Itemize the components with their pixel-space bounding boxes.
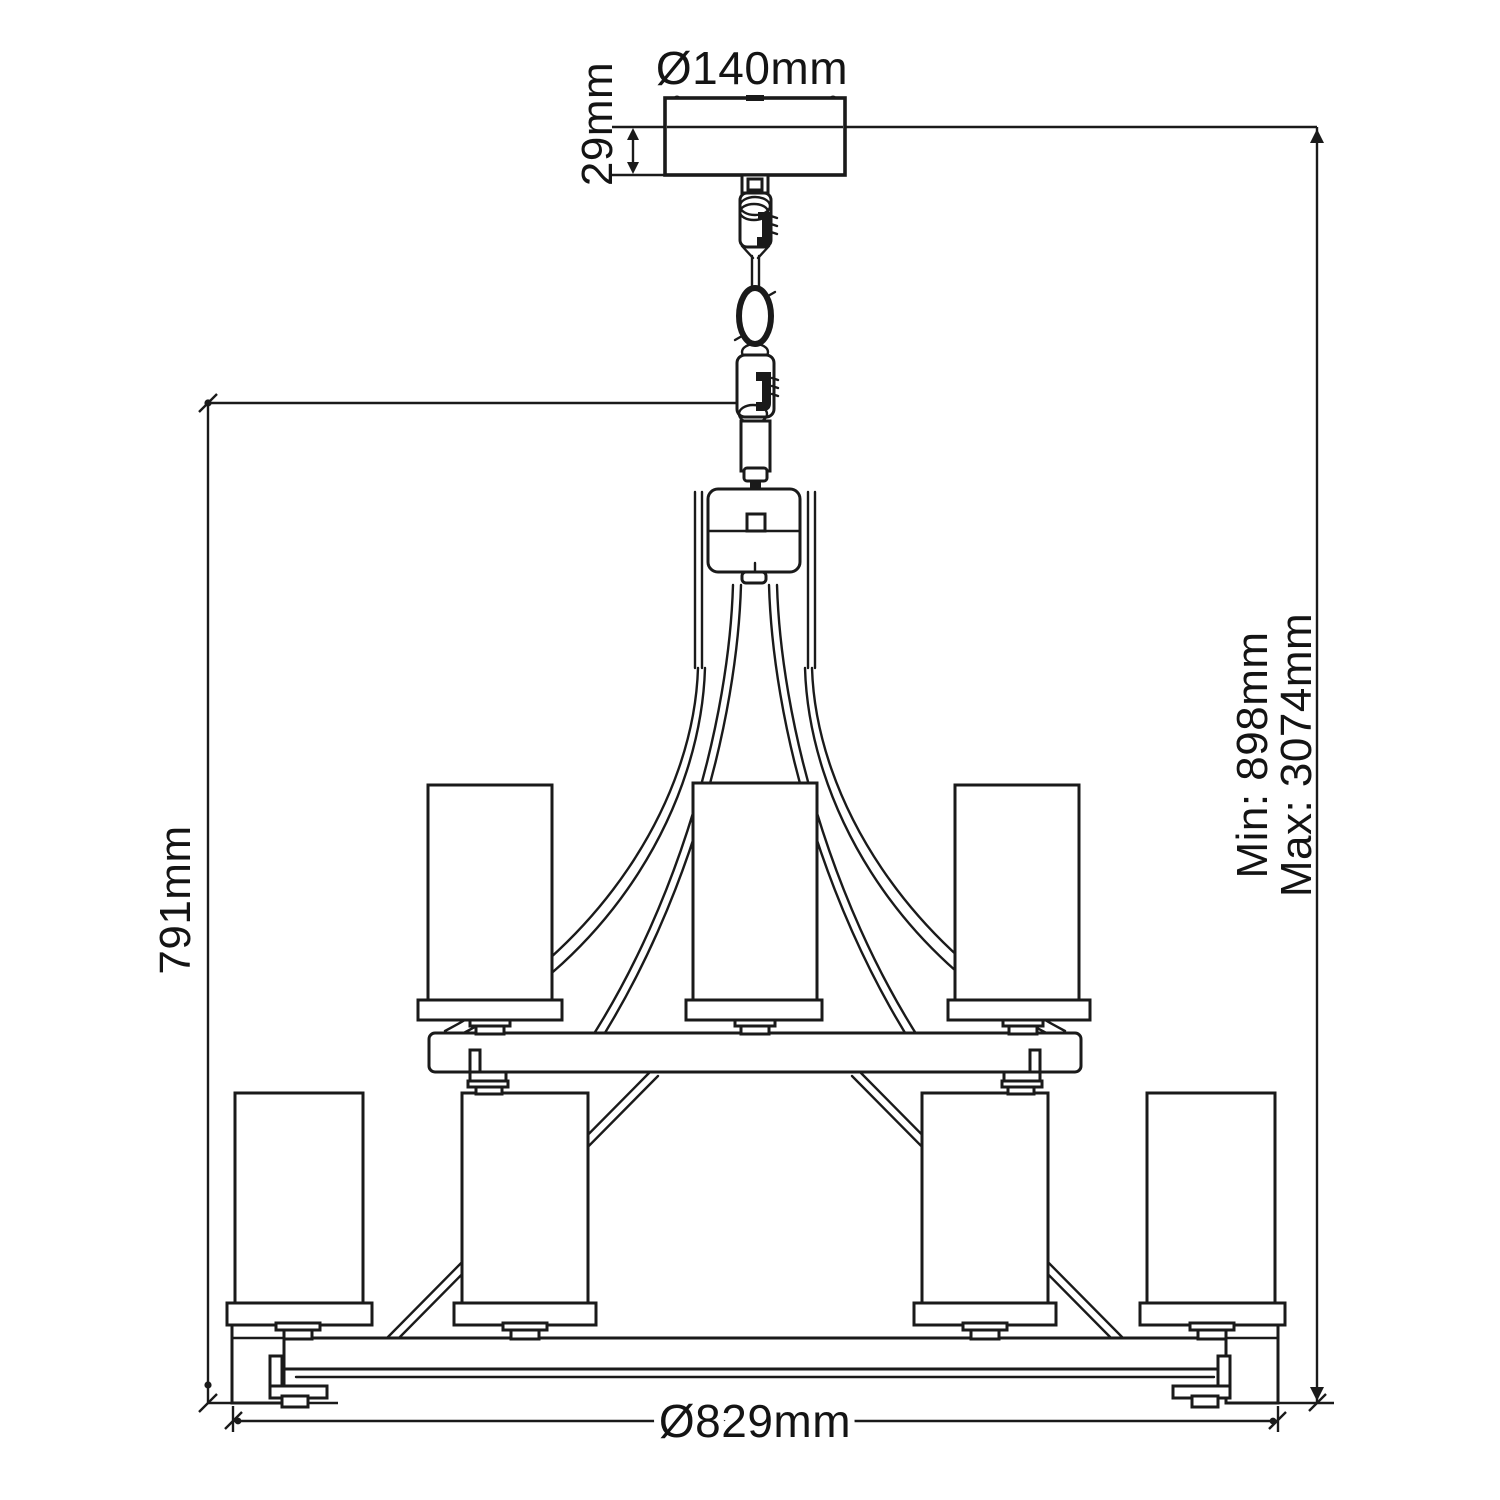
lower-shade-right-inner [922,1093,1048,1303]
upper-hook-left-stub [476,1087,502,1094]
lower-shade-left-inner-stub [511,1330,539,1339]
chain-link [739,288,771,344]
upper-ring [429,1033,1081,1094]
chain-link-notch-bottom [735,336,742,340]
canopy-height-arrow-down [627,162,639,174]
min-drop-label: Min: 898mm [1228,631,1277,878]
upper-shade-center-stub [741,1026,769,1034]
canopy-diameter-label: Ø140mm [656,42,848,94]
ceiling-canopy [665,95,845,175]
lower-shade-far-right-stub [1198,1330,1226,1339]
upper-shade-left-stub [476,1026,504,1034]
hub-notch [747,514,765,531]
body-height-label: 791mm [151,825,200,974]
bottom-hook-right-block [1192,1396,1218,1407]
canopy-height-arrow-up [627,128,639,140]
upper-shade-right-stub [1009,1026,1037,1034]
upper-shade-right-plate [948,1000,1090,1020]
canopy-height-label: 29mm [573,62,622,186]
suspension-chain [735,175,778,489]
body-height-bottom-dot [204,1381,211,1388]
max-drop-label: Max: 3074mm [1272,613,1321,897]
chain-lower-cap [744,468,767,481]
upper-shade-left [428,785,552,1000]
canopy-body [665,98,845,175]
chain-stem-inner [748,179,762,190]
chain-link-notch-top [768,292,775,296]
canopy-top-notch [746,95,764,101]
lower-shade-far-left-stub [284,1330,312,1339]
hub-bottom-tab [742,572,766,583]
upper-shade-center [693,783,817,1000]
fixture-diameter-label: Ø829mm [659,1395,851,1447]
drop-height-arrow-up [1310,129,1324,143]
bottom-hook-left-block [282,1396,308,1407]
lower-shade-left-inner [462,1093,588,1303]
bottom-hook-right-finger [1218,1356,1230,1388]
chandelier-dimension-drawing: Ø140mm 29mm 791mm Min: 898mm Max: 3074mm… [0,0,1500,1500]
lower-shade-far-left [235,1093,363,1303]
chain-lower-cylinder [741,421,770,471]
upper-ring-bar [429,1033,1081,1072]
bottom-ring-right-end-cap [1226,1322,1278,1403]
fixture-diameter-left-dot [235,1418,242,1425]
upper-shade-right [955,785,1079,1000]
lower-tier-shades [227,1093,1285,1339]
upper-hook-right-stub [1008,1087,1034,1094]
lower-shade-right-inner-stub [971,1330,999,1339]
lower-shade-far-right [1147,1093,1275,1303]
bottom-hook-left-finger [270,1356,282,1388]
bottom-ring-bar [284,1338,1226,1369]
body-height-top-dot [204,399,211,406]
upper-tier-shades [418,783,1090,1034]
central-hub [708,489,800,583]
fixture-diameter-right-dot [1270,1418,1277,1425]
upper-shade-left-plate [418,1000,562,1020]
upper-shade-center-plate [686,1000,822,1020]
technical-drawing-page: Ø140mm 29mm 791mm Min: 898mm Max: 3074mm… [0,0,1500,1500]
